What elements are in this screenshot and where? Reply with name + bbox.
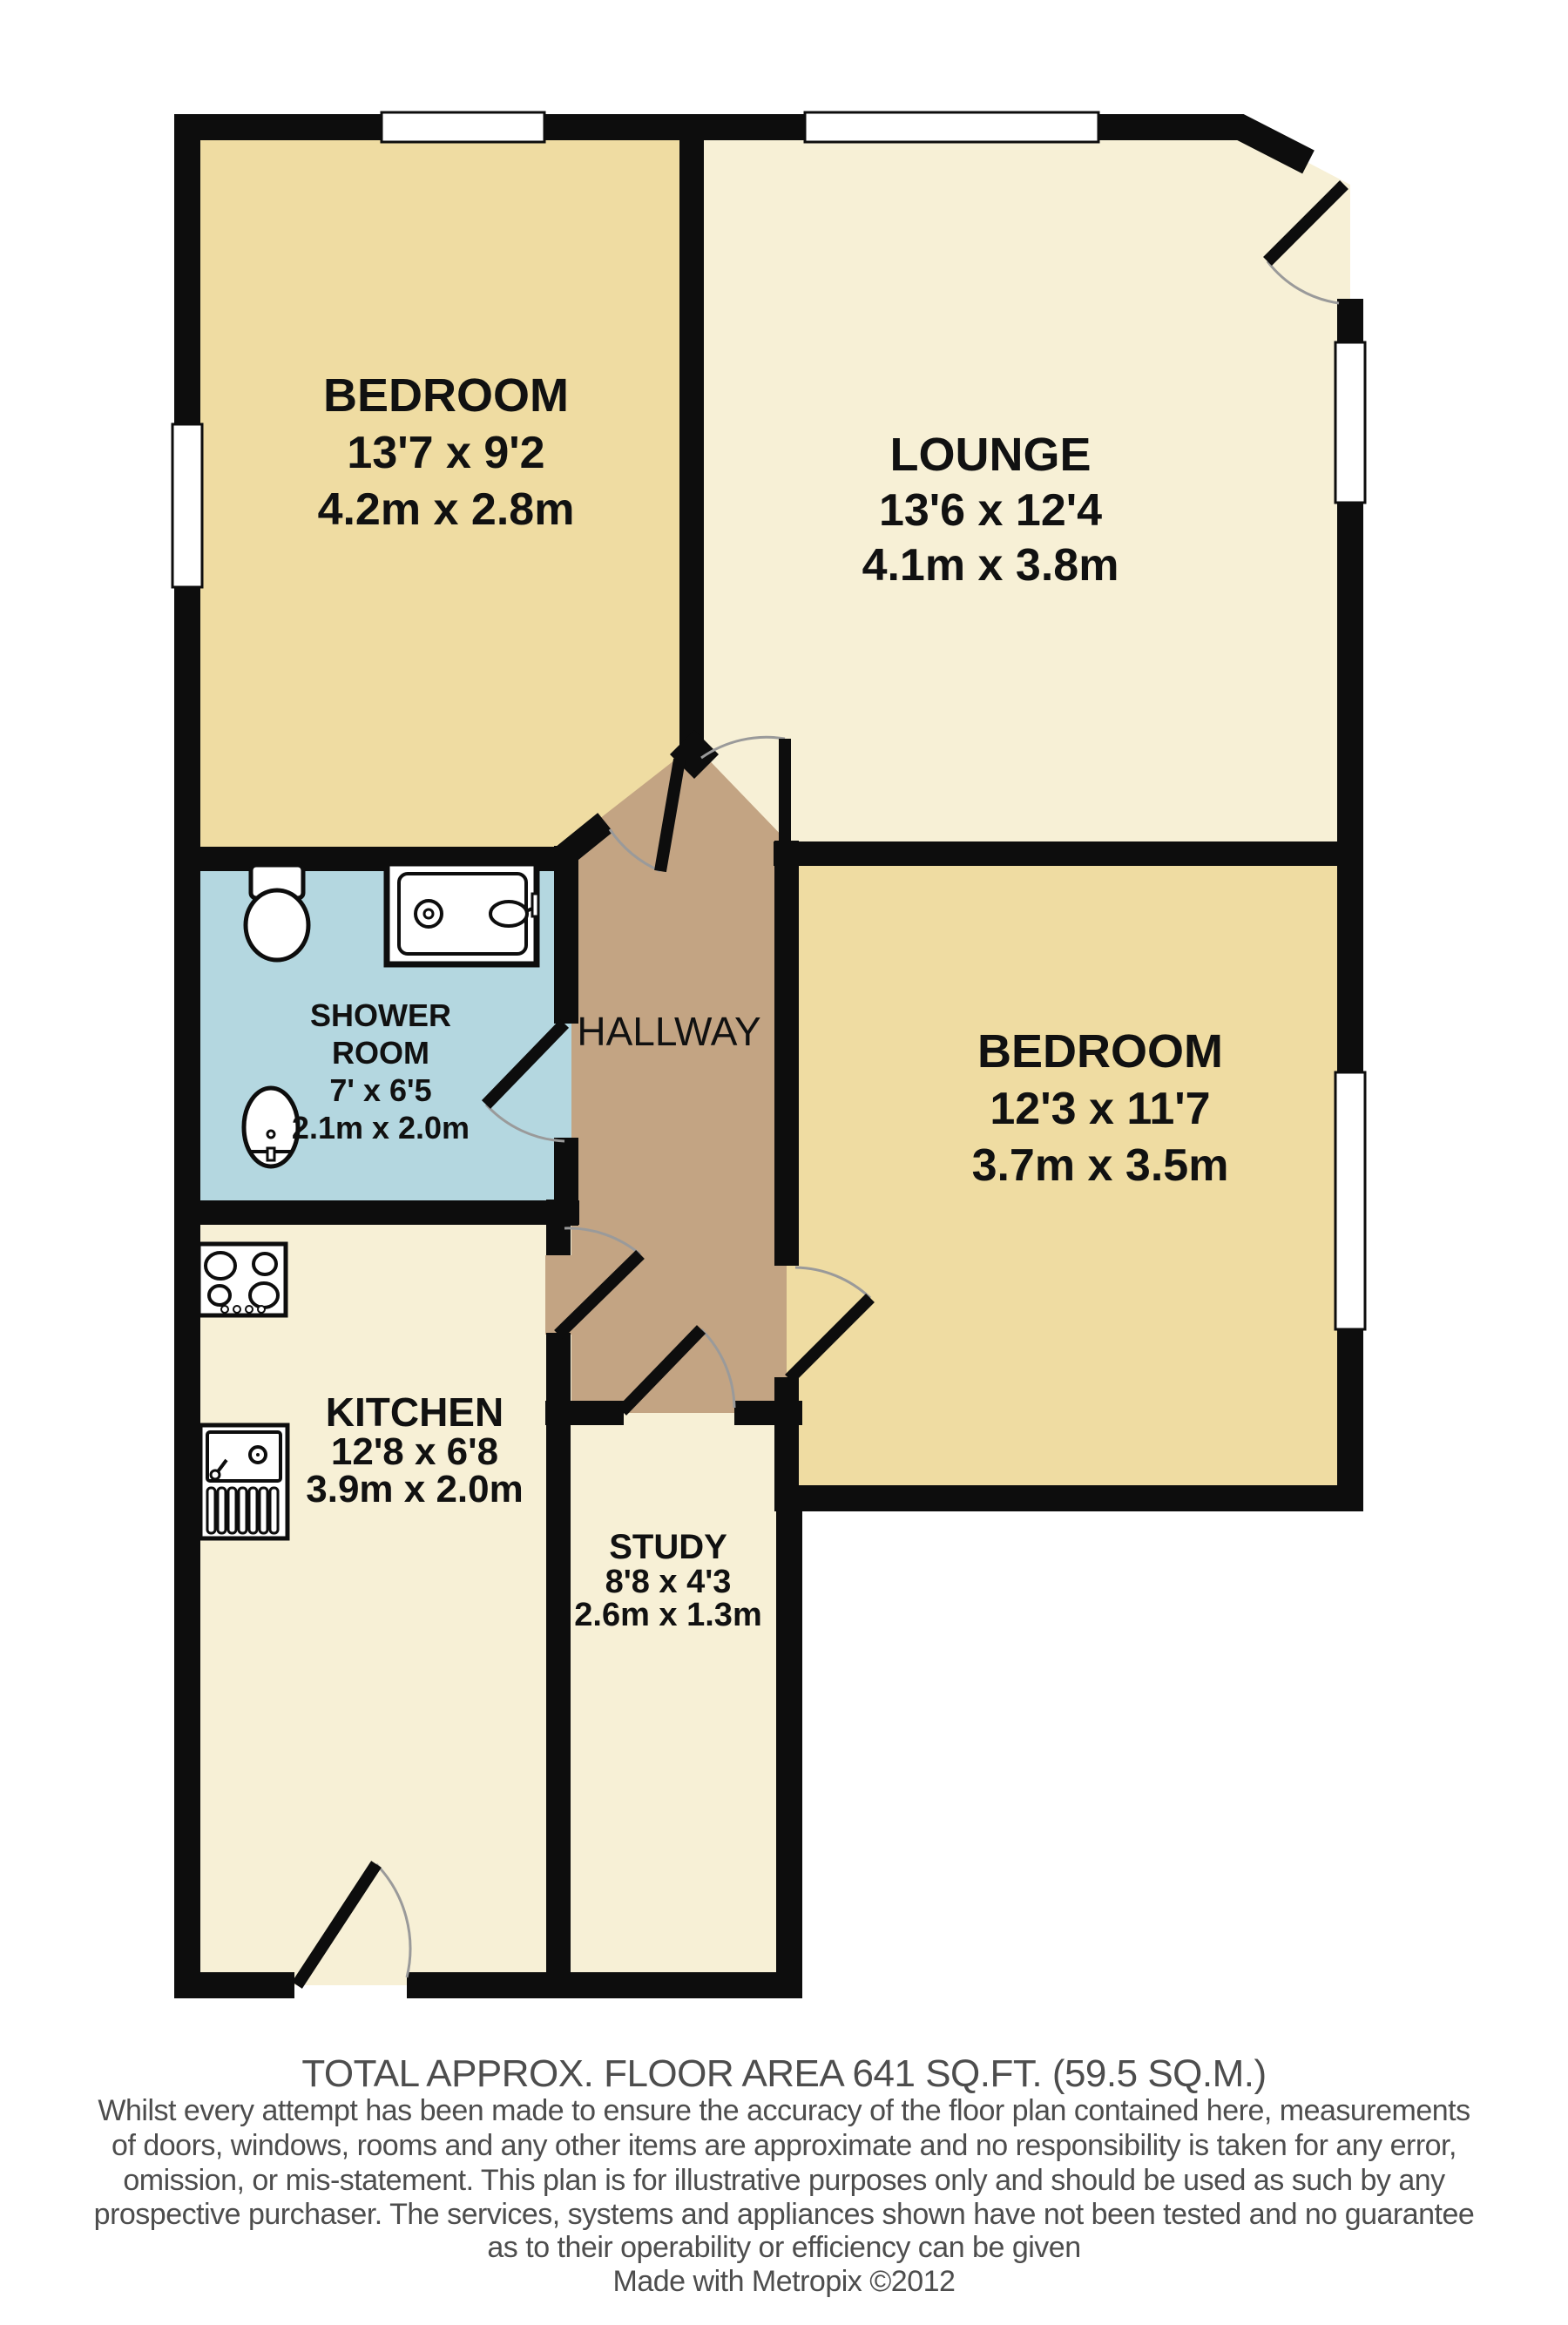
total-floor-area: TOTAL APPROX. FLOOR AREA 641 SQ.FT. (59.… bbox=[301, 2052, 1266, 2095]
cooker-hob-icon bbox=[199, 1244, 286, 1315]
hallway-floor bbox=[571, 745, 787, 1413]
window-bedroom2-right bbox=[1335, 1072, 1365, 1329]
bedroom2-dim-imperial: 12'3 x 11'7 bbox=[990, 1084, 1210, 1134]
kitchen-dim-metric: 3.9m x 2.0m bbox=[306, 1468, 524, 1511]
study-dim-imperial: 8'8 x 4'3 bbox=[605, 1564, 732, 1600]
window-bedroom1-left bbox=[172, 424, 202, 587]
bedroom1-dim-metric: 4.2m x 2.8m bbox=[318, 484, 575, 535]
kitchen-sink-icon bbox=[200, 1425, 287, 1538]
study-floor bbox=[549, 1413, 797, 1985]
metropix-credit: Made with Metropix ©2012 bbox=[613, 2265, 956, 2298]
disclaimer-line-1: Whilst every attempt has been made to en… bbox=[98, 2094, 1470, 2127]
lounge-dim-metric: 4.1m x 3.8m bbox=[862, 540, 1119, 591]
toilet-icon bbox=[246, 865, 308, 960]
footer: TOTAL APPROX. FLOOR AREA 641 SQ.FT. (59.… bbox=[94, 2052, 1475, 2298]
kitchen-dim-imperial: 12'8 x 6'8 bbox=[331, 1430, 498, 1473]
shower-tray-icon bbox=[387, 863, 538, 964]
shower-room-dim-imperial: 7' x 6'5 bbox=[329, 1072, 431, 1108]
disclaimer-line-2: of doors, windows, rooms and any other i… bbox=[112, 2129, 1456, 2162]
bedroom1-label: BEDROOM bbox=[323, 369, 569, 422]
disclaimer-line-4: prospective purchaser. The services, sys… bbox=[94, 2198, 1475, 2231]
floorplan: BEDROOM 13'7 x 9'2 4.2m x 2.8m LOUNGE 13… bbox=[0, 0, 1568, 2325]
bedroom1-dim-imperial: 13'7 x 9'2 bbox=[347, 428, 544, 478]
window-lounge-top bbox=[805, 112, 1098, 142]
lounge-dim-imperial: 13'6 x 12'4 bbox=[879, 485, 1102, 536]
window-lounge-right bbox=[1335, 342, 1365, 503]
study-dim-metric: 2.6m x 1.3m bbox=[574, 1597, 761, 1633]
shower-room-label-line1: SHOWER bbox=[310, 997, 451, 1033]
shower-room-dim-metric: 2.1m x 2.0m bbox=[292, 1110, 470, 1146]
study-label: STUDY bbox=[609, 1528, 727, 1566]
shower-room-label-line2: ROOM bbox=[332, 1035, 429, 1071]
floorplan-page: BEDROOM 13'7 x 9'2 4.2m x 2.8m LOUNGE 13… bbox=[0, 0, 1568, 2325]
wash-basin-icon bbox=[244, 1088, 298, 1166]
disclaimer-line-3: omission, or mis-statement. This plan is… bbox=[123, 2164, 1445, 2197]
kitchen-label: KITCHEN bbox=[326, 1389, 504, 1435]
disclaimer-line-5: as to their operability or efficiency ca… bbox=[487, 2231, 1080, 2264]
bedroom2-label: BEDROOM bbox=[977, 1025, 1223, 1078]
hallway-label: HALLWAY bbox=[577, 1009, 760, 1054]
window-bedroom1-top bbox=[382, 112, 544, 142]
lounge-label: LOUNGE bbox=[889, 429, 1091, 481]
bedroom2-dim-metric: 3.7m x 3.5m bbox=[972, 1140, 1229, 1191]
